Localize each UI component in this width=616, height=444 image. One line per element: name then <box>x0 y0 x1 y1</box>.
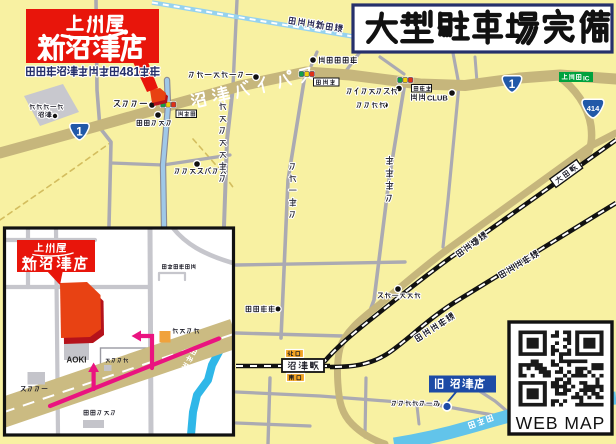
svg-text:1: 1 <box>76 126 83 138</box>
svg-text:1: 1 <box>509 79 516 91</box>
svg-text:CLUB: CLUB <box>427 94 448 103</box>
svg-text:IC: IC <box>583 76 590 83</box>
svg-text:AOKI: AOKI <box>67 356 87 365</box>
svg-text:414: 414 <box>587 104 600 113</box>
svg-text:481: 481 <box>120 65 141 79</box>
svg-text:WEB MAP: WEB MAP <box>516 413 606 433</box>
